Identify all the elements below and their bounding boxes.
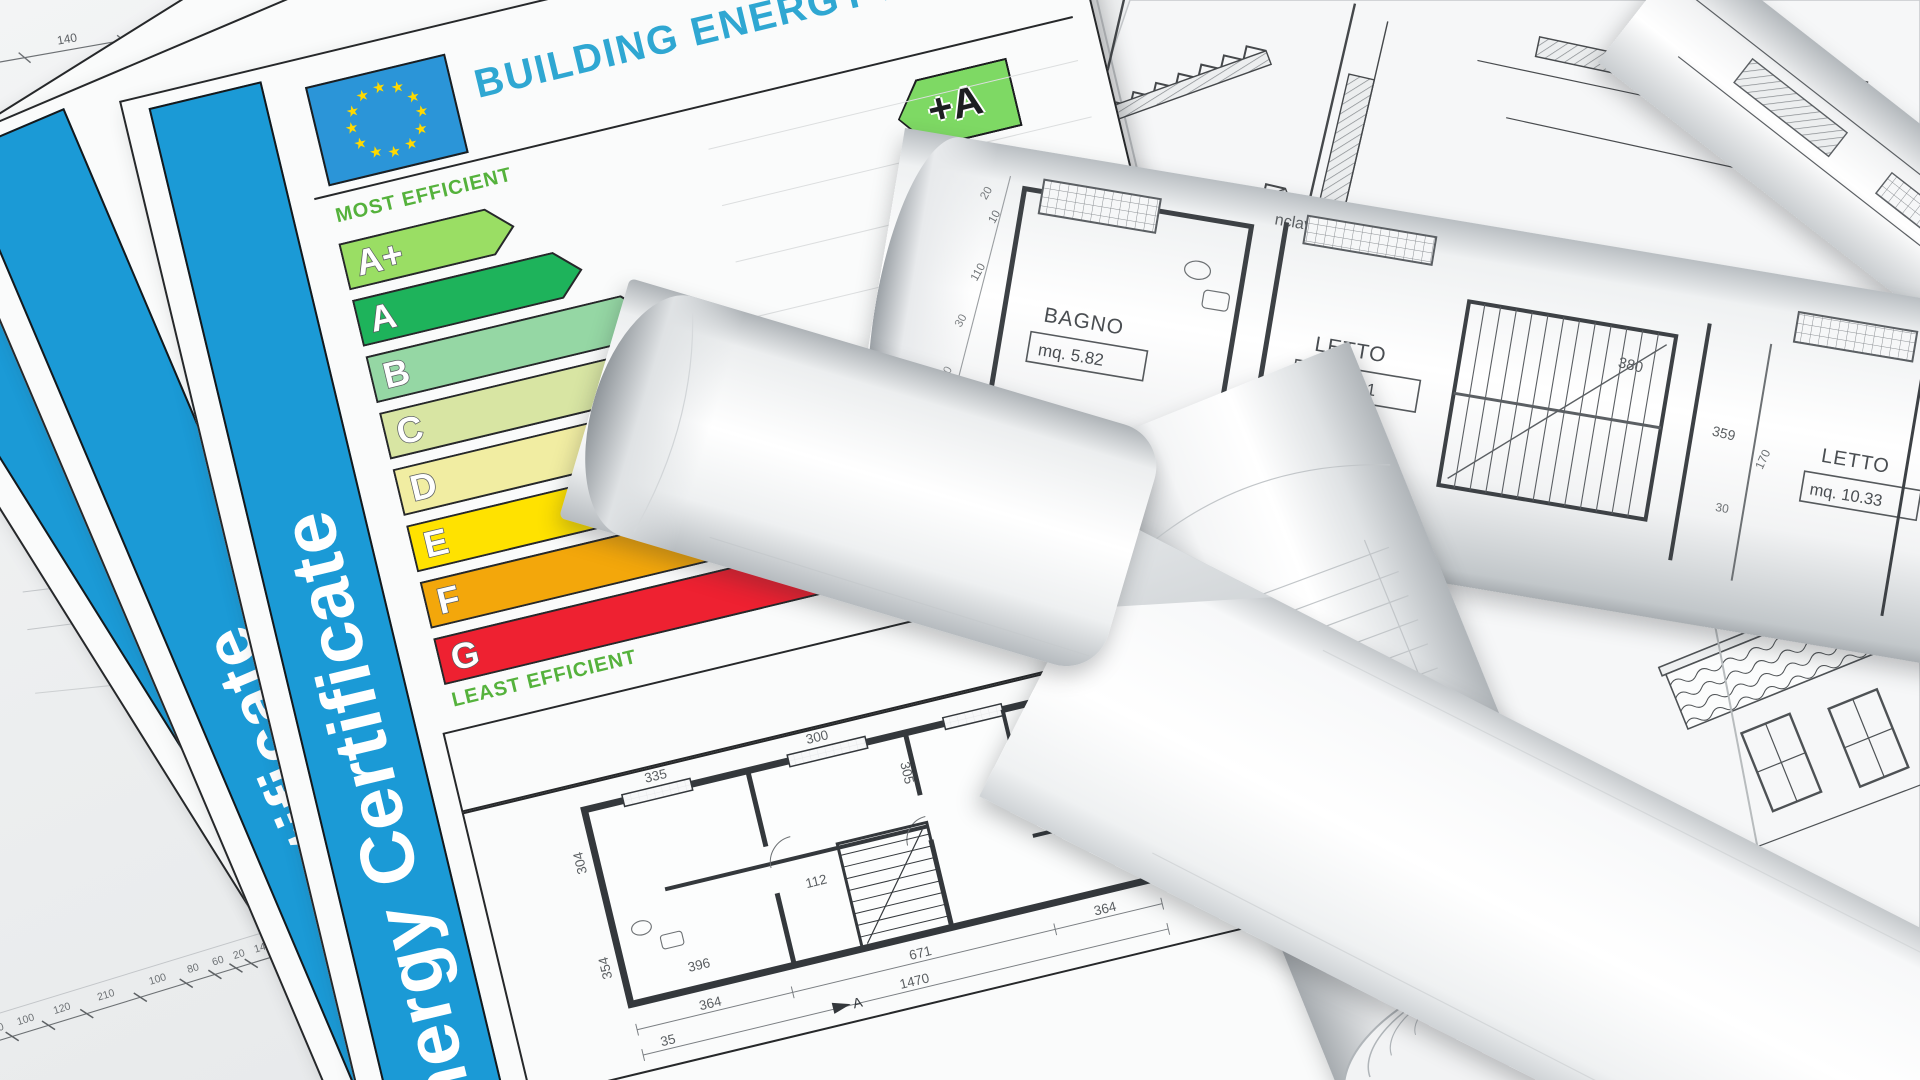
eu-star: ★	[414, 103, 431, 121]
svg-text:100: 100	[16, 1011, 36, 1028]
svg-text:1470: 1470	[898, 970, 931, 992]
svg-text:20: 20	[232, 947, 247, 962]
dim-label: 170	[1752, 447, 1773, 471]
dim-label: 140	[56, 30, 78, 47]
eu-star: ★	[352, 134, 369, 152]
eu-star: ★	[389, 79, 406, 97]
eu-star: ★	[368, 143, 385, 161]
svg-text:30: 30	[953, 312, 970, 329]
eu-star: ★	[354, 88, 371, 106]
eu-star: ★	[386, 143, 403, 161]
plan-section-marker: A	[832, 993, 865, 1016]
svg-text:20: 20	[0, 1021, 5, 1036]
svg-text:20: 20	[978, 185, 995, 202]
room-area: mq. 10.33	[1808, 480, 1883, 510]
svg-text:10: 10	[987, 208, 1004, 225]
dim-label: 30	[1714, 500, 1730, 516]
svg-text:80: 80	[186, 961, 201, 976]
svg-text:354: 354	[595, 955, 615, 981]
svg-text:304: 304	[570, 850, 590, 876]
room-label: LETTO	[1820, 445, 1892, 478]
staircase-plan	[1438, 301, 1676, 519]
svg-text:35: 35	[659, 1031, 677, 1049]
eu-star: ★	[344, 120, 361, 138]
eu-star: ★	[371, 79, 388, 97]
scene: 140 120 120 270 280 A1 WC	[0, 0, 1920, 1080]
ruled-guide-line	[708, 60, 1078, 150]
dim-label: 359	[1711, 423, 1738, 444]
svg-text:60: 60	[211, 953, 226, 968]
svg-text:210: 210	[96, 987, 116, 1004]
room-label: BAGNO	[1042, 304, 1126, 340]
svg-text:120: 120	[52, 1000, 72, 1017]
svg-text:100: 100	[147, 971, 167, 988]
